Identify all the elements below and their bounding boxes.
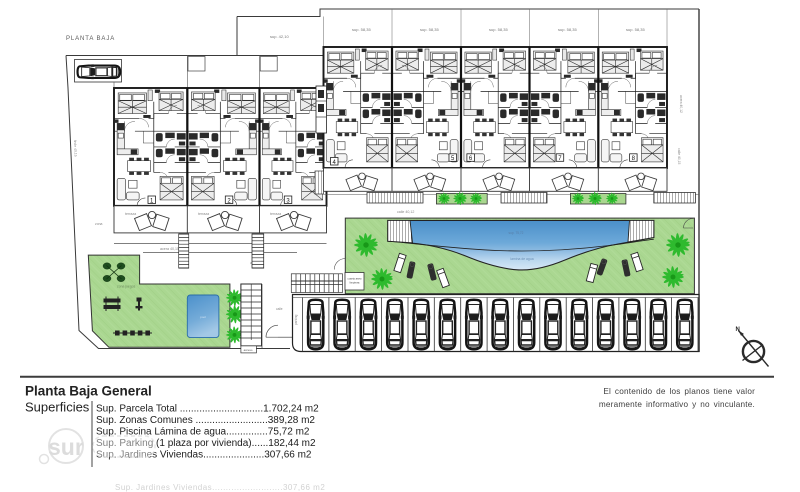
- svg-text:Planta Baja General: Planta Baja General: [25, 384, 152, 399]
- svg-text:sup. 58,35: sup. 58,35: [420, 27, 439, 32]
- svg-text:sup. 58,35: sup. 58,35: [558, 27, 577, 32]
- svg-text:lamina de agua: lamina de agua: [510, 257, 533, 261]
- svg-text:acera 40,12: acera 40,12: [679, 95, 683, 113]
- svg-text:acera 40,15: acera 40,15: [160, 247, 179, 251]
- svg-text:zona juegos: zona juegos: [117, 285, 136, 289]
- svg-text:calle 40,15: calle 40,15: [677, 148, 681, 165]
- svg-text:sup. 42,10: sup. 42,10: [270, 34, 289, 39]
- svg-text:sur: sur: [48, 434, 84, 460]
- svg-text:N: N: [736, 327, 740, 333]
- svg-text:calle 40,12: calle 40,12: [397, 210, 414, 214]
- svg-text:Sup. Parcela Total ...........: Sup. Parcela Total .....................…: [96, 404, 319, 415]
- svg-text:PLANTA BAJA: PLANTA BAJA: [66, 36, 115, 42]
- svg-text:terraza: terraza: [125, 212, 136, 216]
- svg-text:sup. 75,72: sup. 75,72: [509, 231, 524, 235]
- svg-text:acceso: acceso: [244, 348, 253, 352]
- svg-text:limpieza: limpieza: [350, 281, 360, 285]
- svg-text:meramente informativo y no vin: meramente informativo y no vinculante.: [599, 400, 755, 409]
- svg-text:pool: pool: [200, 315, 206, 319]
- svg-text:zona: zona: [95, 222, 102, 226]
- svg-text:parking: parking: [294, 314, 298, 325]
- svg-text:sup. 58,35: sup. 58,35: [626, 27, 645, 32]
- svg-text:Sup. Zonas Comunes ...........: Sup. Zonas Comunes .....................…: [96, 415, 315, 426]
- svg-text:terraza: terraza: [198, 212, 209, 216]
- svg-text:sup. 58,35: sup. 58,35: [489, 27, 508, 32]
- svg-text:Sup. Piscina Lámina de agua...: Sup. Piscina Lámina de agua.............…: [96, 427, 310, 438]
- svg-text:Superficies: Superficies: [25, 400, 90, 415]
- svg-text:sup. 58,35: sup. 58,35: [352, 27, 371, 32]
- svg-text:El contenido de los planos tie: El contenido de los planos tiene valor: [603, 387, 755, 396]
- svg-text:linde 40,15: linde 40,15: [73, 140, 78, 157]
- svg-text:cuarto aseo: cuarto aseo: [347, 277, 362, 281]
- svg-text:calle: calle: [276, 307, 283, 311]
- svg-text:Sup. Jardines Viviendas.......: Sup. Jardines Viviendas.................…: [115, 483, 325, 492]
- svg-text:terraza: terraza: [270, 212, 281, 216]
